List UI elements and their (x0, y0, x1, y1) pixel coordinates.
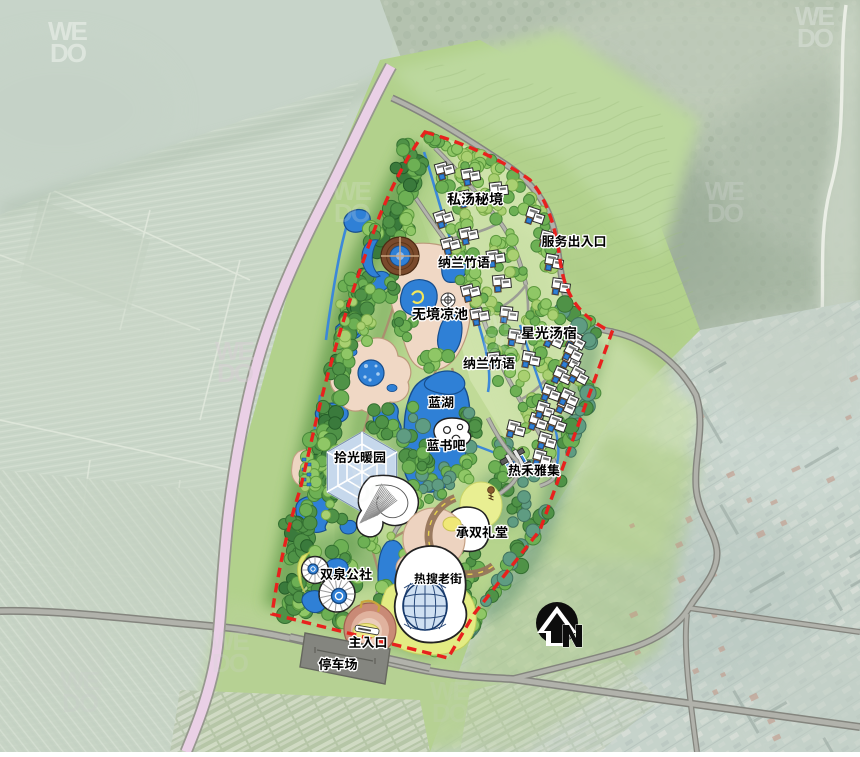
svg-text:DO: DO (707, 198, 744, 228)
svg-text:DO: DO (432, 698, 469, 728)
svg-text:DO: DO (217, 358, 254, 388)
svg-text:DO: DO (50, 38, 87, 68)
svg-text:DO: DO (212, 648, 249, 678)
svg-text:DO: DO (482, 328, 519, 358)
svg-text:DO: DO (352, 478, 389, 508)
svg-text:DO: DO (334, 198, 371, 228)
svg-text:DO: DO (62, 688, 99, 718)
svg-text:DO: DO (797, 23, 834, 53)
